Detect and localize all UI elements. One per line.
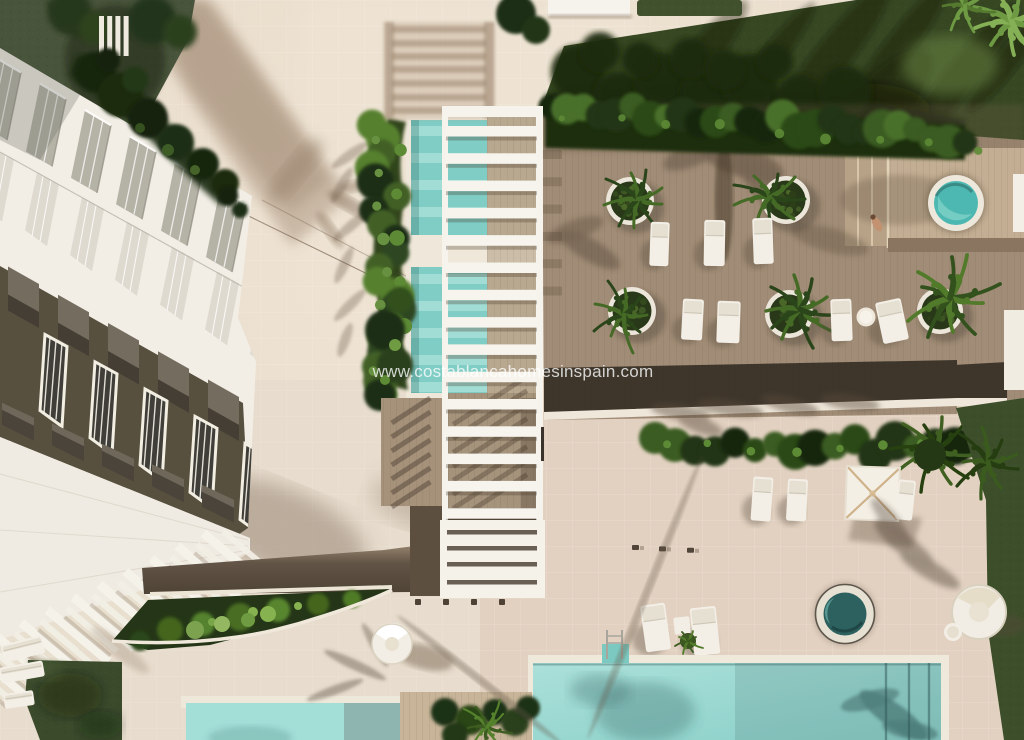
svg-text:www.costablancahomesinspain.co: www.costablancahomesinspain.com — [372, 362, 654, 381]
